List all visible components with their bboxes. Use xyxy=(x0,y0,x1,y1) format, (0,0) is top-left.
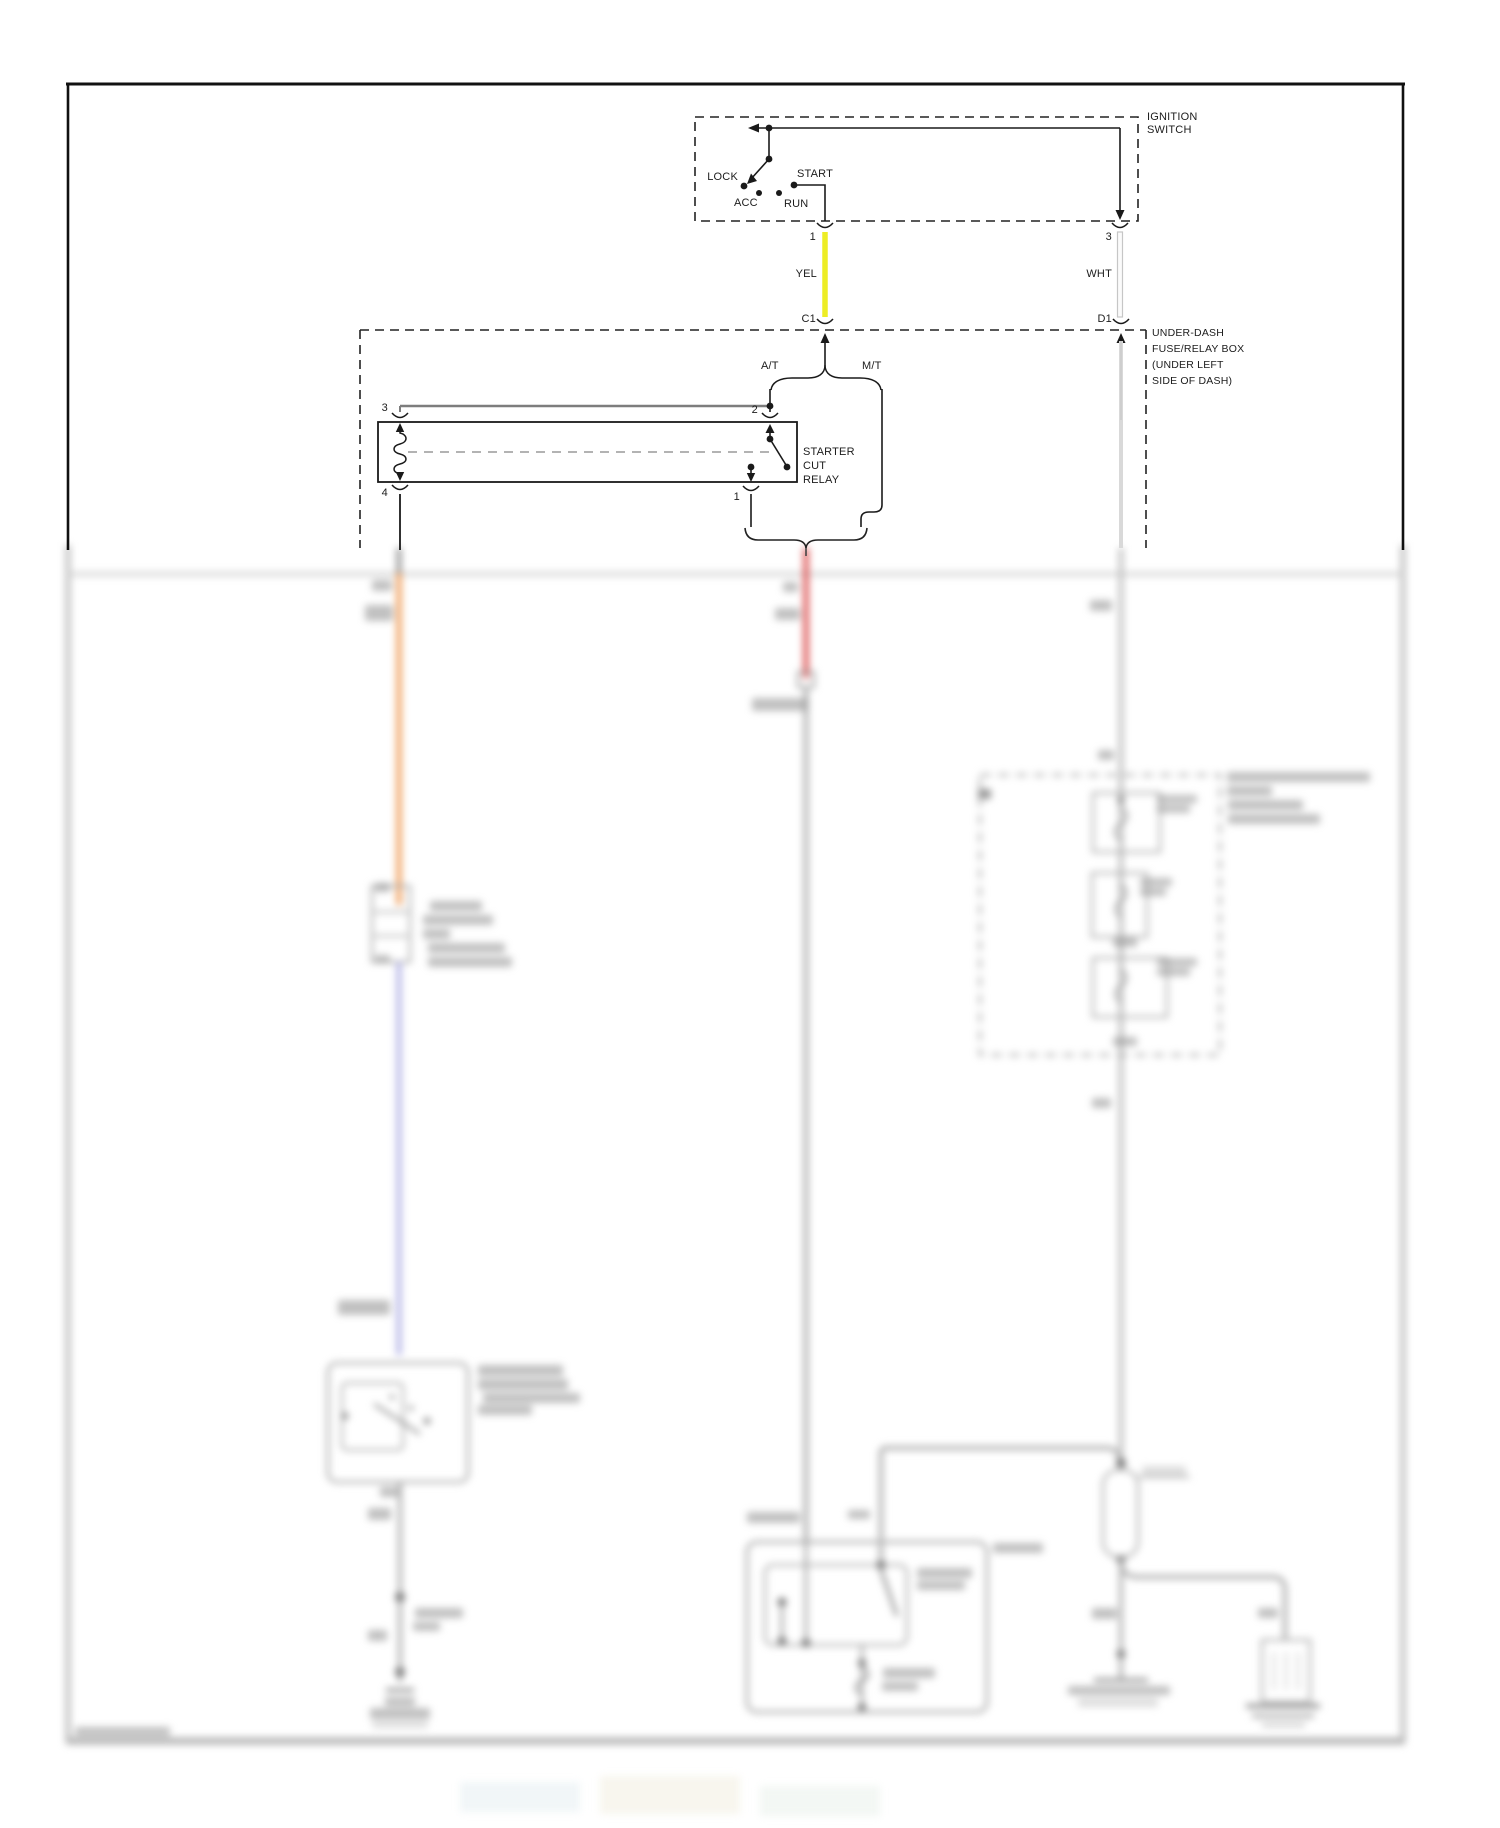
position-start-label: START xyxy=(797,168,833,180)
wiring-lines xyxy=(0,0,1500,1828)
ignition-pin-3: 3 xyxy=(1096,231,1112,243)
relay-pin-3: 3 xyxy=(372,402,388,414)
yellow-wire-label: YEL xyxy=(780,268,817,280)
starter-cut-relay-label-line3: RELAY xyxy=(803,474,839,486)
relay-pin-4: 4 xyxy=(372,487,388,499)
starter-cut-relay-label-line2: CUT xyxy=(803,460,826,472)
white-wire-label: WHT xyxy=(1075,268,1112,280)
branch-mt-label: M/T xyxy=(862,360,882,372)
under-dash-box-label-line4: SIDE OF DASH) xyxy=(1152,375,1232,387)
relay-pin-2: 2 xyxy=(742,404,758,416)
position-run-label: RUN xyxy=(784,198,808,210)
position-acc-label: ACC xyxy=(734,197,758,209)
ignition-switch-label-line1: IGNITION xyxy=(1147,111,1198,123)
connector-d1-label: D1 xyxy=(1086,313,1112,325)
relay-pin-1: 1 xyxy=(724,491,740,503)
wiring-diagram-page: IGNITION SWITCH LOCK START ACC RUN 1 3 Y… xyxy=(0,0,1500,1828)
under-dash-box-label-line1: UNDER-DASH xyxy=(1152,327,1224,339)
position-lock-label: LOCK xyxy=(700,171,738,183)
under-dash-box-label-line3: (UNDER LEFT xyxy=(1152,359,1224,371)
under-dash-box-label-line2: FUSE/RELAY BOX xyxy=(1152,343,1244,355)
connector-c1-label: C1 xyxy=(790,313,816,325)
ignition-pin-1: 1 xyxy=(800,231,816,243)
branch-at-label: A/T xyxy=(761,360,779,372)
starter-cut-relay-label-line1: STARTER xyxy=(803,446,855,458)
ignition-switch-label-line2: SWITCH xyxy=(1147,124,1192,136)
